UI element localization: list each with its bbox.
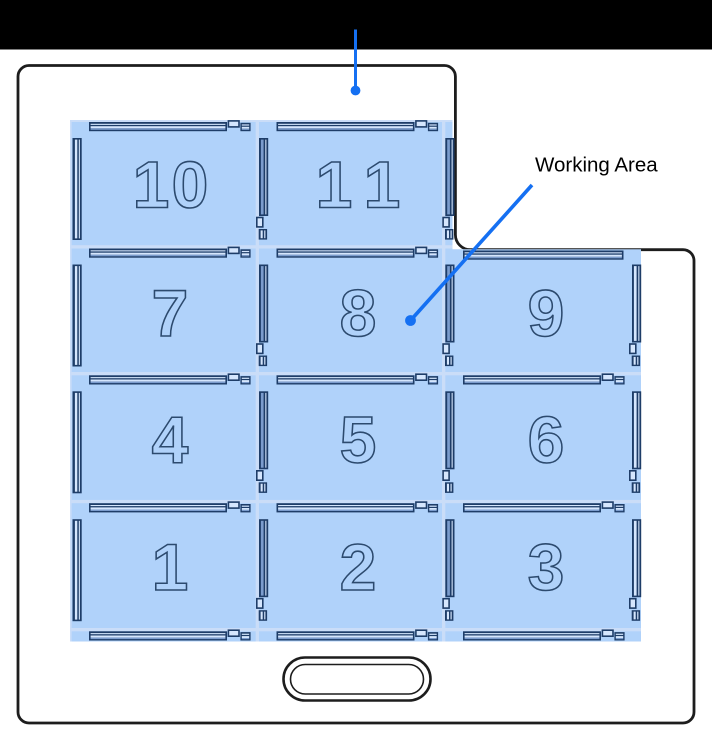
svg-text:4: 4: [152, 403, 189, 477]
svg-text:Working Area: Working Area: [535, 154, 658, 177]
svg-text:1: 1: [152, 530, 189, 604]
svg-text:3: 3: [528, 530, 565, 604]
svg-text:6: 6: [528, 403, 565, 477]
svg-text:9: 9: [528, 276, 565, 350]
svg-text:8: 8: [340, 276, 377, 350]
svg-text:7: 7: [152, 276, 189, 350]
svg-text:5: 5: [340, 403, 377, 477]
svg-text:2: 2: [340, 530, 377, 604]
